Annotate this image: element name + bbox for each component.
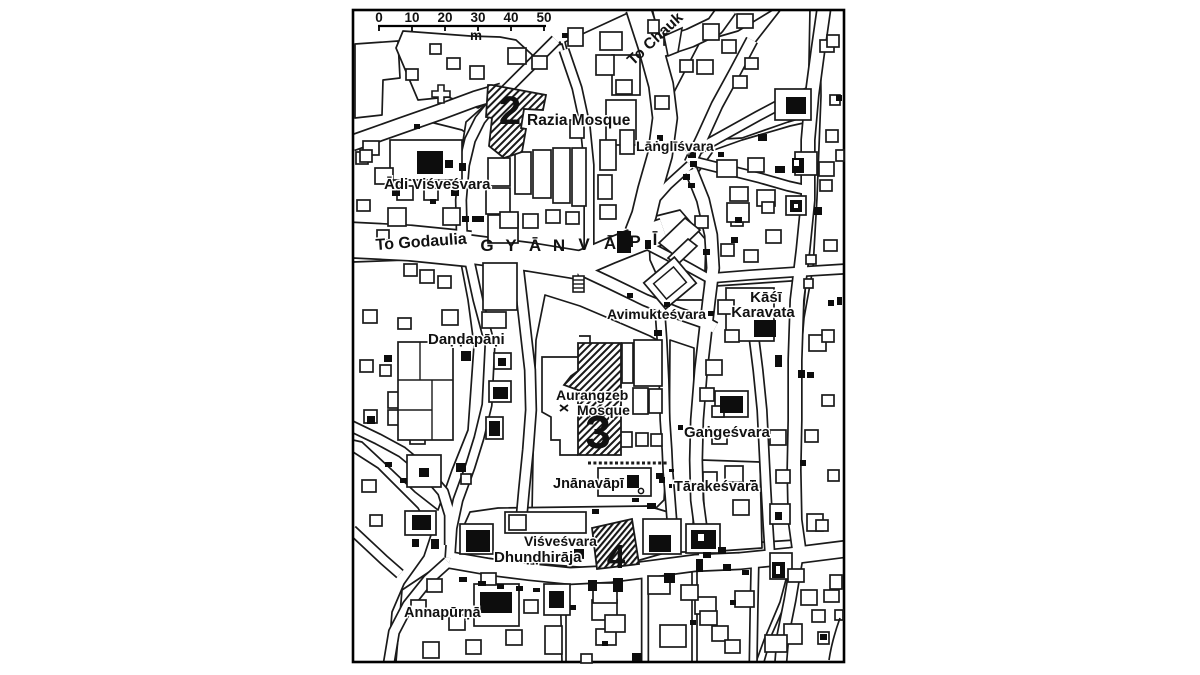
svg-text:Ā: Ā [529,236,541,255]
svg-text:G: G [480,236,493,255]
svg-text:V: V [578,235,590,254]
svg-text:Razia Mosque: Razia Mosque [527,112,631,129]
svg-text:40: 40 [503,10,518,25]
svg-text:20: 20 [437,10,452,25]
svg-text:30: 30 [470,10,485,25]
svg-text:P: P [629,232,640,251]
svg-text:N: N [553,236,565,255]
svg-text:0: 0 [375,10,383,25]
svg-text:10: 10 [404,10,419,25]
svg-text:Ā: Ā [604,234,616,253]
svg-text:50: 50 [536,10,551,25]
svg-text:Jnānavāpī: Jnānavāpī [553,476,625,492]
svg-text:Avimukteśvara: Avimukteśvara [607,306,706,322]
svg-text:Dhuṇḍhirāja: Dhuṇḍhirāja [494,549,582,566]
svg-text:Daṇḍapāṇi: Daṇḍapāṇi [428,331,505,348]
svg-text:Ādi Viśveśvara: Ādi Viśveśvara [384,176,491,193]
svg-text:Karavata: Karavata [731,304,795,321]
svg-text:Ī: Ī [652,230,658,249]
svg-text:2: 2 [499,89,521,133]
svg-text:3: 3 [585,406,611,458]
svg-text:Tārakeśvara: Tārakeśvara [674,479,760,495]
svg-text:Lāṅglīśvara: Lāṅglīśvara [636,138,714,154]
svg-text:Viśveśvara: Viśveśvara [524,533,597,549]
svg-text:m: m [470,28,482,43]
svg-text:4: 4 [607,538,626,575]
svg-text:Aurangzeb: Aurangzeb [556,387,628,403]
svg-text:Gaṅgeśvara: Gaṅgeśvara [684,424,771,441]
svg-text:Annapūrṇā: Annapūrṇā [404,605,481,621]
svg-text:Y: Y [505,236,517,255]
